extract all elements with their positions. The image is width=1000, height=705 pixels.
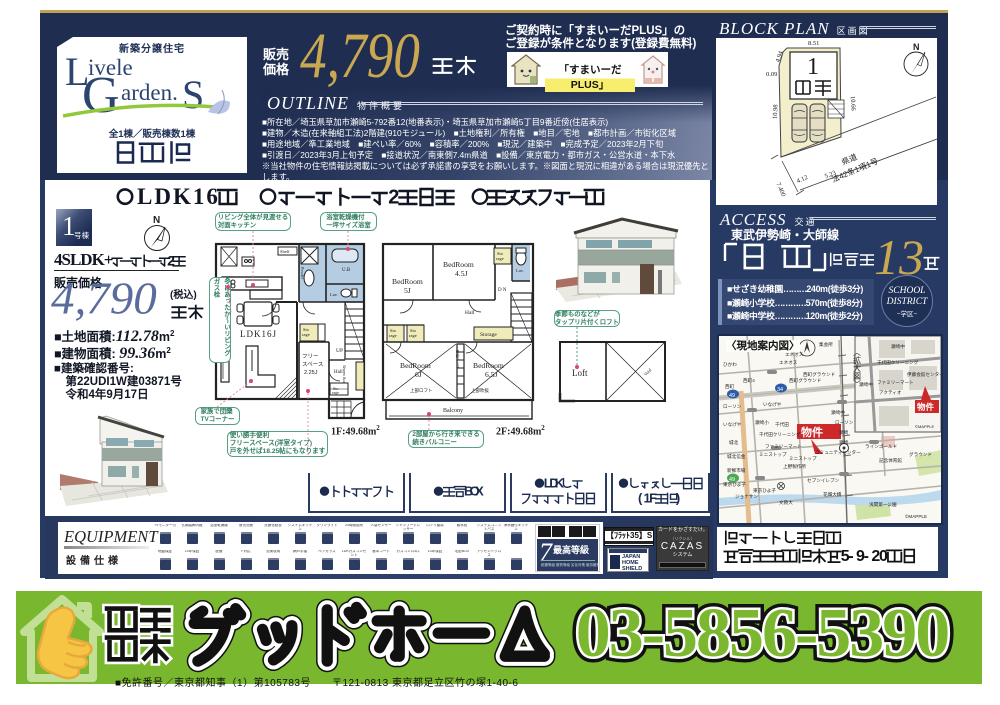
svg-text:物件: 物件 [917,402,935,412]
svg-text:ひかわ: ひかわ [723,361,737,368]
svg-text:伊藤会館センター: 伊藤会館センター [907,371,941,378]
svg-text:グラウンド: グラウンド [909,451,932,458]
svg-text:49: 49 [729,393,735,399]
svg-text:記念体育館: 記念体育館 [879,457,902,464]
svg-text:新鮮市場: 新鮮市場 [727,467,746,474]
svg-text:ラインゴールド: ラインゴールド [865,443,897,450]
svg-text:文教大: 文教大 [779,499,793,506]
svg-text:西町グラウンド: 西町グラウンド [803,371,835,378]
svg-text:N: N [913,42,920,52]
svg-text:X: X [475,483,484,498]
svg-text:瀬崎: 瀬崎 [839,439,849,446]
svg-text:©MAPPLE: ©MAPPLE [905,513,927,519]
svg-text:物件: 物件 [801,425,823,439]
svg-text:-: - [848,548,853,565]
svg-text:上野製作所: 上野製作所 [783,463,806,470]
svg-text:東京ひよ子: 東京ひよ子 [723,481,746,488]
svg-text:瀬崎中: 瀬崎中 [859,381,873,388]
svg-text:F: F [649,491,657,506]
svg-text:瀬崎中: 瀬崎中 [831,409,845,416]
svg-text:いなげや: いなげや [763,401,782,408]
svg-text:千代田: 千代田 [775,421,789,428]
svg-text:集会所: 集会所 [819,341,833,348]
svg-text:ミニストップ: ミニストップ [759,452,787,458]
svg-text:ミニストップ: ミニストップ [789,456,817,462]
svg-text:0: 0 [879,548,888,565]
svg-text:東京ひよ子: 東京ひよ子 [753,487,776,494]
svg-text:10.98: 10.98 [772,104,780,119]
svg-text:西町グラウンド: 西町グラウンド [789,377,821,384]
svg-text:瀬崎: 瀬崎 [839,429,849,436]
svg-text:花畑大橋: 花畑大橋 [823,491,842,498]
svg-text:瀬崎中: 瀬崎中 [891,343,905,350]
svg-text:ローソン: ローソン [723,404,742,409]
svg-text:10.66: 10.66 [849,96,857,112]
svg-text:城北信金: 城北信金 [727,453,746,460]
svg-text:K: K [555,476,565,491]
svg-text:S: S [182,72,204,117]
svg-text:浅間第一公園: 浅間第一公園 [869,501,897,508]
svg-text:1: 1 [807,54,819,80]
svg-text:): ) [676,491,680,506]
svg-text:0.09: 0.09 [766,71,777,78]
svg-text:いなげや: いなげや [723,421,742,428]
svg-text:-: - [864,548,869,565]
svg-text:arden.: arden. [121,80,178,105]
svg-text:7.400: 7.400 [774,182,786,198]
svg-text:4.12: 4.12 [796,174,809,185]
svg-text:西町4: 西町4 [743,378,755,384]
svg-text:コミュニティセンター: コミュニティセンター [815,449,861,456]
svg-text:瀬崎小: 瀬崎小 [755,419,769,426]
svg-text:©MAPPLE: ©MAPPLE [915,424,935,429]
svg-text:8.51: 8.51 [808,40,819,47]
svg-text:西町: 西町 [725,384,735,390]
svg-text:ローソン: ローソン [835,420,854,425]
svg-text:(: ( [638,491,643,506]
svg-text:千代田クリーニング: 千代田クリーニング [759,431,801,438]
svg-text:千代田クリーニング: 千代田クリーニング [877,359,919,366]
svg-text:G: G [82,67,120,124]
svg-text:34: 34 [777,387,783,393]
svg-text:03-5856-5390: 03-5856-5390 [576,595,949,672]
svg-text:セブンイレブン: セブンイレブン [807,477,840,483]
svg-text:城北: 城北 [729,439,739,446]
